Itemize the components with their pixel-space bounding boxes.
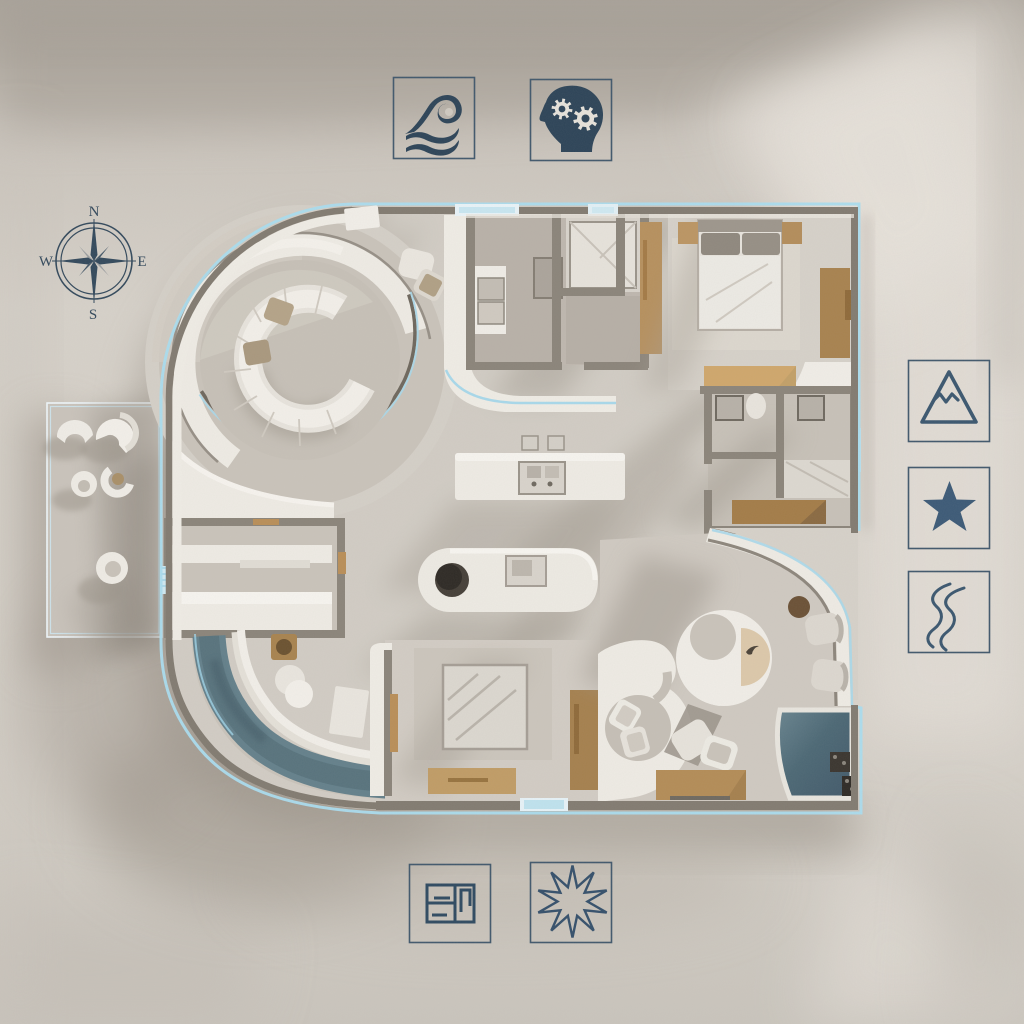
svg-text:W: W	[39, 254, 54, 270]
svg-text:S: S	[89, 307, 97, 323]
svg-text:E: E	[137, 254, 146, 270]
svg-text:N: N	[89, 204, 100, 220]
